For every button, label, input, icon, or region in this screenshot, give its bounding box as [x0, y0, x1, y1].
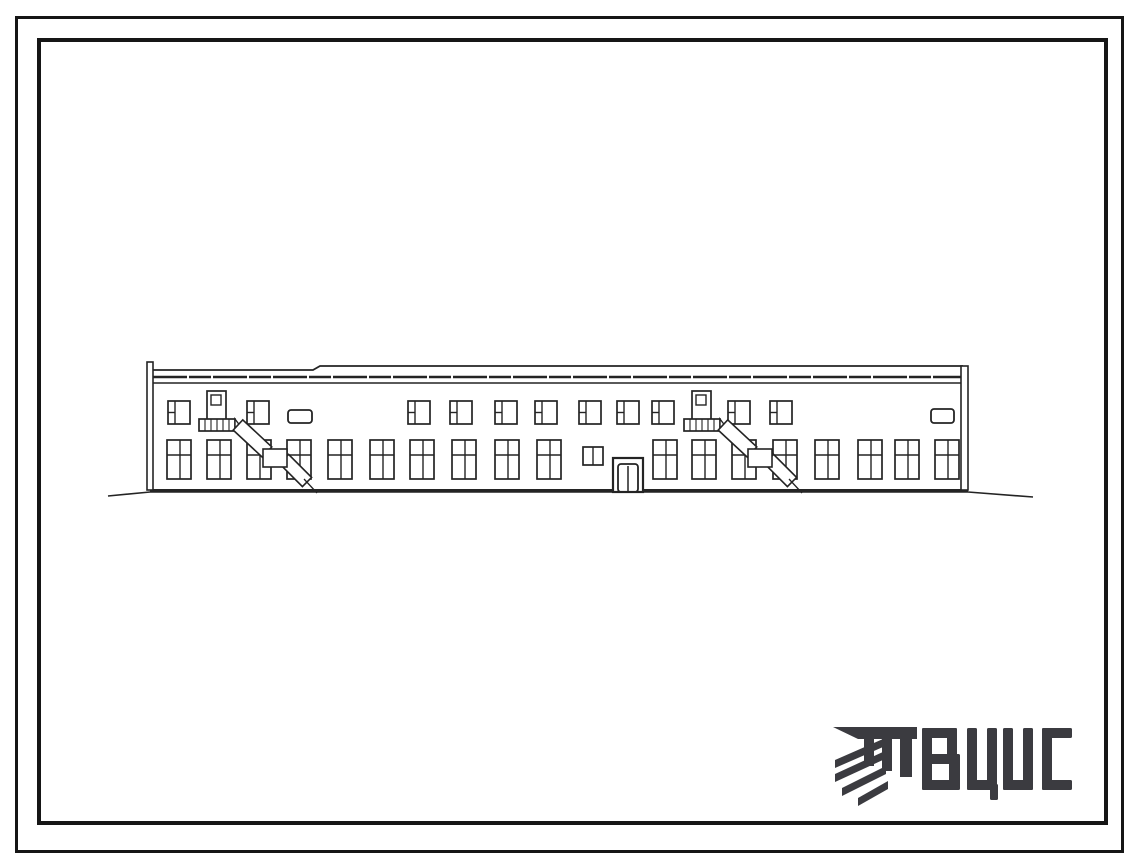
- lower-window: [167, 440, 191, 479]
- upper-window: [770, 401, 792, 424]
- upper-window: [652, 401, 674, 424]
- corner-post: [147, 362, 153, 490]
- elevation-linework: [108, 362, 1033, 497]
- upper-window: [495, 401, 517, 424]
- upper-window: [247, 401, 269, 424]
- upper-window: [450, 401, 472, 424]
- lower-window: [858, 440, 882, 479]
- lower-window: [207, 440, 231, 479]
- wall-vent: [931, 409, 954, 423]
- vcis-logo: [833, 727, 1072, 806]
- lower-window: [537, 440, 561, 479]
- roof-parapet: [153, 366, 963, 383]
- logo-letter: [1003, 728, 1033, 790]
- wall-vent: [288, 410, 312, 423]
- lower-window: [815, 440, 839, 479]
- lower-window: [370, 440, 394, 479]
- upper-window: [728, 401, 750, 424]
- entrance-door: [613, 458, 643, 492]
- upper-window: [617, 401, 639, 424]
- corner-post: [961, 366, 968, 490]
- upper-window: [168, 401, 190, 424]
- mid-window: [583, 447, 603, 465]
- vcis-logo-icon: [833, 727, 917, 806]
- logo-letter: [967, 728, 998, 800]
- lower-window: [895, 440, 919, 479]
- conveyor-hoist: [684, 391, 802, 493]
- lower-window: [328, 440, 352, 479]
- building-elevation-drawing: [0, 0, 1134, 863]
- ground-line: [108, 491, 1033, 498]
- lower-window: [692, 440, 716, 479]
- lower-window: [653, 440, 677, 479]
- upper-window: [408, 401, 430, 424]
- lower-window: [935, 440, 959, 479]
- lower-window: [410, 440, 434, 479]
- logo-letter: [1042, 728, 1072, 790]
- upper-window: [579, 401, 601, 424]
- lower-window: [452, 440, 476, 479]
- vcis-logo-text: [922, 728, 1072, 800]
- upper-window: [535, 401, 557, 424]
- logo-letter: [922, 728, 960, 790]
- lower-window: [495, 440, 519, 479]
- scanned-drawing-sheet: [0, 0, 1134, 863]
